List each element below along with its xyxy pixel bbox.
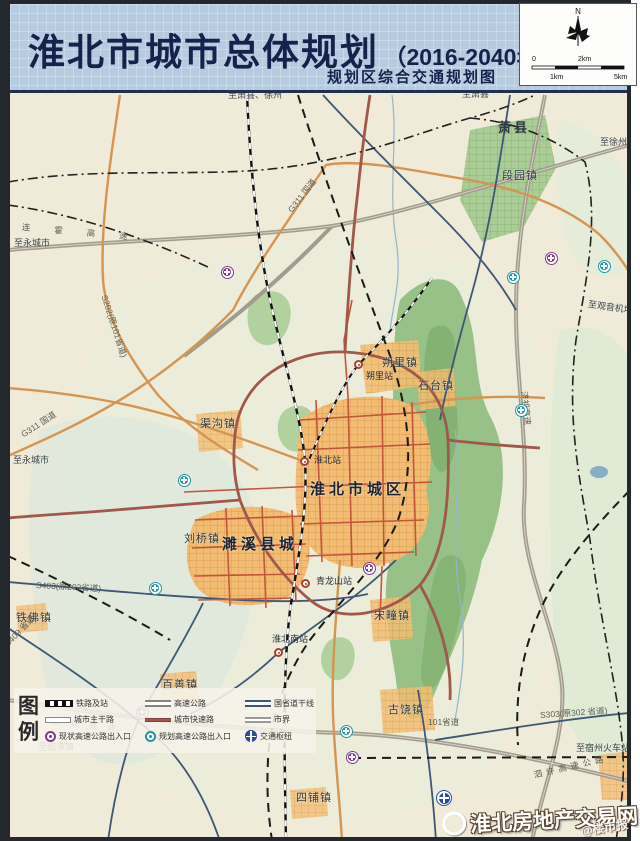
compass-rose-icon: N 0 2km 1km 5km: [520, 4, 636, 85]
existing-interchange-icon: [346, 751, 359, 764]
svg-text:5km: 5km: [614, 74, 627, 81]
compass-north-label: N: [575, 7, 581, 16]
map-label-station: 青龙山站: [316, 577, 352, 586]
legend-grid: 铁路及站高速公路国省道干线城市主干路城市快速路市界现状高速公路出入口规划高速公路…: [45, 698, 314, 742]
arterial-symbol: [45, 717, 71, 723]
legend-item-interchange-planned: 规划高速公路出入口: [145, 730, 241, 742]
map-label-city: 濉溪县城: [222, 537, 298, 552]
huaibei-station-icon: [300, 457, 309, 466]
map-label-dir: 至徐州: [600, 138, 627, 147]
hub-interchange-icon: [436, 790, 452, 806]
expressway-symbol: [145, 700, 171, 707]
map-label-station: 淮北南站: [272, 635, 308, 644]
planned-interchange-icon: [515, 404, 528, 417]
map-label-town: 四铺镇: [296, 793, 332, 804]
legend-label: 高速公路: [174, 698, 206, 709]
map-label-town: 朔里镇: [382, 358, 418, 369]
map-label-town: 石台镇: [418, 381, 454, 392]
legend: 图例 铁路及站高速公路国省道干线城市主干路城市快速路市界现状高速公路出入口规划高…: [14, 688, 316, 753]
legend-heading: 图例: [18, 694, 39, 747]
existing-interchange-icon: [221, 266, 234, 279]
legend-item-arterial: 城市主干路: [45, 714, 141, 725]
legend-label: 现状高速公路出入口: [59, 731, 131, 742]
interchange-planned-symbol: [145, 731, 156, 742]
boundary-symbol: [245, 717, 271, 723]
hub-symbol: [245, 730, 257, 742]
svg-text:1km: 1km: [550, 74, 563, 81]
planned-interchange-icon: [507, 271, 520, 284]
legend-item-urban-expressway: 城市快速路: [145, 714, 241, 725]
legend-label: 国省道干线: [274, 698, 314, 709]
huaibei-south-station-icon: [274, 648, 283, 657]
urban-expressway-symbol: [145, 718, 171, 722]
legend-item-expressway: 高速公路: [145, 698, 241, 709]
interchange-existing-symbol: [45, 731, 56, 742]
map-label-town: 宋疃镇: [374, 611, 410, 622]
legend-item-interchange-existing: 现状高速公路出入口: [45, 730, 141, 742]
map-label-town: 古饶镇: [388, 705, 424, 716]
planned-interchange-icon: [178, 474, 191, 487]
qinglongshan-station-icon: [301, 579, 310, 588]
legend-label: 城市主干路: [74, 714, 114, 725]
scale-bar: 0 2km 1km 5km: [532, 56, 627, 81]
existing-interchange-icon: [363, 562, 376, 575]
map-label-road: 101省道: [428, 718, 459, 727]
existing-interchange-icon: [545, 252, 558, 265]
legend-item-hub: 交通枢纽: [245, 730, 314, 742]
legend-item-boundary: 市界: [245, 714, 314, 725]
map-label-city: 淮北市城区: [310, 482, 405, 497]
compass-scale-box: N 0 2km 1km 5km: [519, 3, 637, 86]
map-label-town: 渠沟镇: [200, 419, 236, 430]
svg-text:0: 0: [532, 56, 536, 63]
legend-item-trunk: 国省道干线: [245, 698, 314, 709]
legend-label: 铁路及站: [76, 698, 108, 709]
map-label-dir: 至永城市: [13, 456, 49, 465]
map-label-dir: 至萧县、徐州: [228, 93, 282, 100]
map-label-dir: 至萧县: [462, 93, 489, 99]
shuoli-station-icon: [354, 360, 363, 369]
map-label-dir: 至永城市: [14, 239, 50, 248]
map-label-station: 朔里站: [366, 372, 393, 381]
legend-label: 交通枢纽: [260, 731, 292, 742]
planning-map-page: 萧县段园镇朔里镇石台镇渠沟镇淮北市城区刘桥镇濉溪县城宋疃镇铁佛镇百善镇古饶镇四铺…: [0, 0, 640, 841]
svg-text:2km: 2km: [578, 56, 591, 63]
planned-interchange-icon: [598, 260, 611, 273]
legend-item-railway: 铁路及站: [45, 698, 141, 709]
map-label-town: 段园镇: [502, 171, 538, 182]
planned-interchange-icon: [149, 582, 162, 595]
legend-label: 城市快速路: [174, 714, 214, 725]
legend-label: 市界: [274, 714, 290, 725]
planned-interchange-icon: [340, 725, 353, 738]
legend-label: 规划高速公路出入口: [159, 731, 231, 742]
map-label-station: 淮北站: [314, 456, 341, 465]
map-label-county: 萧县: [498, 121, 530, 134]
watermark-logo-icon: [441, 811, 466, 836]
map-label-dir: 至宿州火车站: [576, 744, 627, 753]
railway-symbol: [45, 700, 73, 707]
map-subtitle: 规划区综合交通规划图: [327, 66, 497, 87]
trunk-symbol: [245, 700, 271, 707]
map-label-town: 刘桥镇: [184, 534, 220, 545]
